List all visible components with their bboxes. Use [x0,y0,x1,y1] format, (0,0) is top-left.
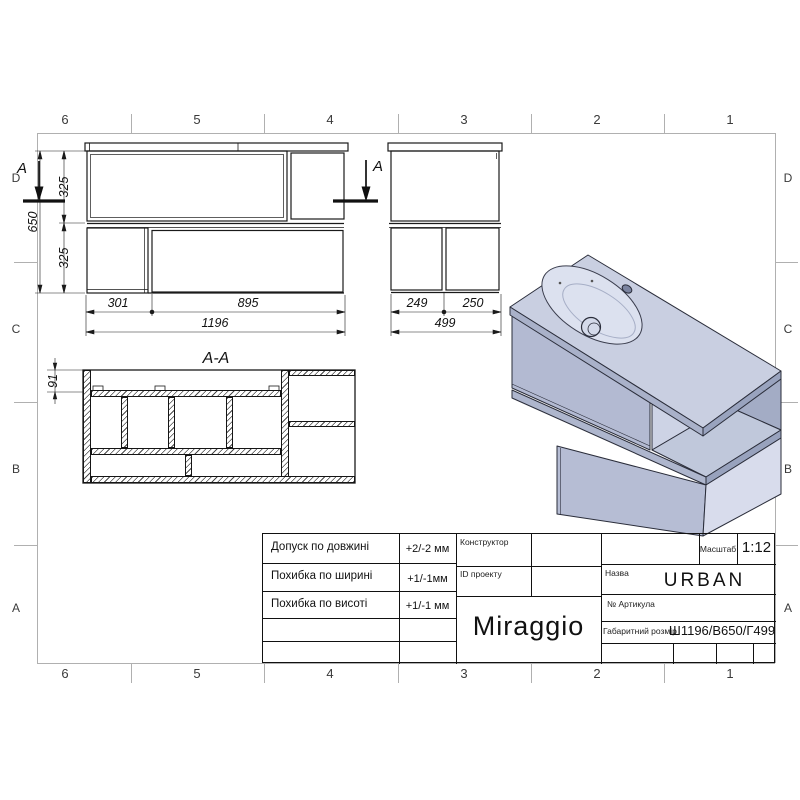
section-right-divider [281,370,289,483]
project-id-label: ID проекту [460,569,502,579]
dim-325-upper: 325 [57,170,71,204]
section-left-wall [83,370,91,483]
title-block-line [753,643,754,664]
tolerance-value: +1/-1мм [399,573,456,585]
tolerance-label: Похибка по ширині [271,570,372,582]
dim-249: 249 [397,297,437,310]
section-partition-1 [121,397,128,448]
tolerance-value: +2/-2 мм [399,543,456,555]
isometric-view [510,250,781,536]
section-bottom-panel [91,476,355,483]
title-block-line [601,621,776,622]
dim-250: 250 [453,297,493,310]
section-label-right: A [368,158,388,175]
dim-650: 650 [26,205,40,239]
size-label: Габаритний розмір [603,626,677,636]
dim-499: 499 [425,317,465,330]
section-label-left: A [12,160,32,177]
title-block-line [456,596,601,597]
section-lower-partition [185,455,192,476]
section-right-mid-shelf [289,421,355,427]
section-cut-arrows [23,160,378,201]
counter-dot [591,280,594,283]
title-block-line [263,563,456,564]
dim-91: 91 [46,364,60,398]
counter-dot [559,282,562,285]
title-block-line [456,566,601,567]
name-value: URBAN [633,570,776,592]
name-label: Назва [605,568,629,578]
dim-301: 301 [98,297,138,310]
dim-895: 895 [228,297,268,310]
title-block-line [456,534,457,664]
scale-value: 1:12 [737,539,776,556]
title-block-line [263,641,456,642]
title-block-line [263,591,456,592]
brand-logo: Miraggio [456,611,601,642]
tolerance-label: Допуск по довжині [271,541,369,553]
views-canvas [0,0,800,800]
tolerance-value: +1/-1 мм [399,600,456,612]
title-block-line [601,594,776,595]
title-block-line [673,643,674,664]
scale-label: Масштаб [699,544,737,554]
article-label: № Артикула [607,599,655,609]
front-view-dimensions [35,151,345,336]
front-view [85,143,348,293]
section-mid-shelf [91,448,281,455]
side-view [388,143,502,293]
section-right-top-panel [289,370,355,376]
section-title: A-A [186,350,246,368]
title-block-line [531,534,532,596]
size-value: Ш1196/В650/Г499 [668,623,776,638]
title-block: Допуск по довжині +2/-2 мм Похибка по ши… [262,533,775,663]
constructor-label: Конструктор [460,537,508,547]
title-block-line [601,643,776,644]
drawing-sheet: 6 5 4 3 2 1 6 5 4 3 2 1 D C B A D C B A [0,0,800,800]
dim-325-lower: 325 [57,241,71,275]
title-block-line [601,534,602,664]
tolerance-label: Похибка по висоті [271,598,367,610]
title-block-line [601,564,776,565]
section-partition-2 [168,397,175,448]
section-top-shelf [91,390,281,397]
title-block-line [716,643,717,664]
dim-1196: 1196 [195,317,235,330]
section-partition-3 [226,397,233,448]
title-block-line [263,618,456,619]
